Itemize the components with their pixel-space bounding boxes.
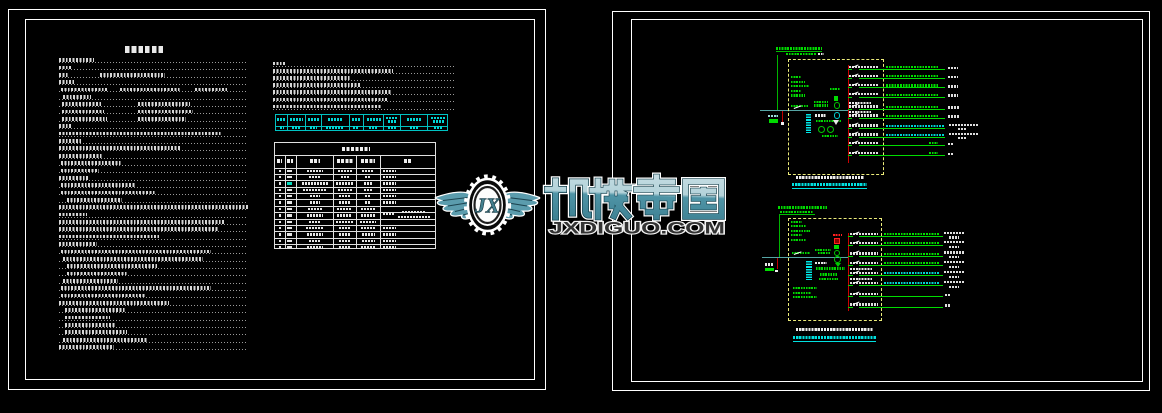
svg-text:JX: JX [474,194,501,218]
svg-text:JXDIGUO.COM: JXDIGUO.COM [549,219,725,238]
